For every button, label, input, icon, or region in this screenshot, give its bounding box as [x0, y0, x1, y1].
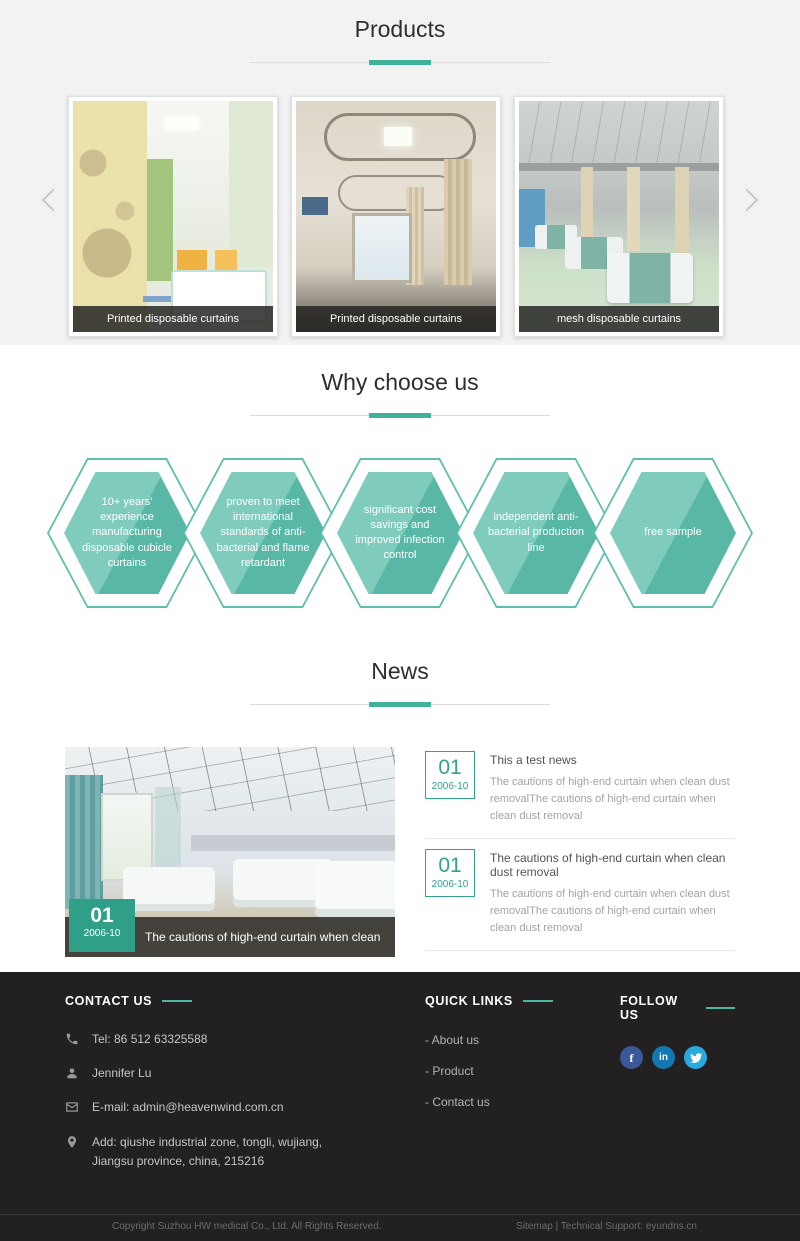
quicklinks-heading-label: QUICK LINKS: [425, 994, 513, 1008]
news-item-title[interactable]: The cautions of high-end curtain when cl…: [490, 851, 735, 879]
facebook-icon: f: [630, 1052, 634, 1064]
decor-bed: [123, 867, 215, 911]
linkedin-icon: in: [659, 1053, 668, 1063]
product-caption-3: mesh disposable curtains: [519, 306, 719, 332]
contact-row-address: Add: qiushe industrial zone, tongli, wuj…: [65, 1133, 365, 1171]
news-title-underline: [250, 704, 550, 705]
twitter-icon: [689, 1051, 702, 1064]
contact-list: Tel: 86 512 63325588 Jennifer Lu E-mail:…: [65, 1030, 425, 1171]
title-accent: [369, 60, 431, 65]
products-section: Products: [0, 0, 800, 345]
footer-contact-column: CONTACT US Tel: 86 512 63325588 Jennifer…: [65, 994, 425, 1186]
decor-light: [165, 117, 199, 130]
footer-bottom-bar: Copyright Suzhou HW medical Co., Ltd. Al…: [0, 1214, 800, 1241]
contact-email: E-mail: admin@heavenwind.com.cn: [92, 1098, 284, 1117]
decor-rail: [519, 163, 719, 171]
decor-light: [384, 127, 412, 146]
contact-person: Jennifer Lu: [92, 1064, 151, 1083]
decor-wall: [73, 101, 147, 332]
heading-dash: [523, 1000, 553, 1002]
quicklink-about-us[interactable]: - About us: [425, 1033, 620, 1047]
product-card-1[interactable]: Printed disposable curtains: [68, 96, 278, 337]
followus-heading: FOLLOW US: [620, 994, 735, 1022]
decor-curtain-track: [338, 175, 456, 211]
product-image-icu-ward: [519, 101, 719, 332]
product-media-1: Printed disposable curtains: [73, 101, 273, 332]
news-featured-day: 01: [69, 904, 135, 928]
hexagon-feature-5: free sample: [593, 458, 753, 608]
title-accent: [369, 702, 431, 707]
decor-chair: [215, 250, 237, 270]
decor-curtain: [65, 775, 103, 909]
hexagon-strip: 10+ years' experience manufacturing disp…: [0, 450, 800, 646]
decor-curtain: [627, 167, 640, 251]
copyright-text: Copyright Suzhou HW medical Co., Ltd. Al…: [112, 1221, 382, 1232]
contact-address: Add: qiushe industrial zone, tongli, wuj…: [92, 1133, 365, 1171]
decor-bed: [607, 253, 693, 303]
news-item-summary: The cautions of high-end curtain when cl…: [490, 774, 735, 825]
social-links: f in: [620, 1046, 735, 1069]
mail-icon: [65, 1100, 79, 1114]
news-item-2[interactable]: 01 2006-10 The cautions of high-end curt…: [425, 839, 735, 951]
news-featured-yearmonth: 2006-10: [69, 928, 135, 939]
product-caption-1: Printed disposable curtains: [73, 306, 273, 332]
decor-console: [191, 835, 395, 851]
news-yearmonth: 2006-10: [426, 781, 474, 792]
quicklinks-heading: QUICK LINKS: [425, 994, 620, 1008]
decor-ceiling: [519, 101, 719, 171]
decor-cabinet: [147, 159, 173, 281]
why-choose-us-section: Why choose us 10+ years' experience manu…: [0, 345, 800, 646]
news-featured-date-badge: 01 2006-10: [69, 899, 135, 952]
quicklink-contact-us[interactable]: - Contact us: [425, 1095, 620, 1109]
contact-row-tel: Tel: 86 512 63325588: [65, 1030, 365, 1049]
user-icon: [65, 1066, 79, 1080]
quicklink-product[interactable]: - Product: [425, 1064, 620, 1078]
hexagon-feature-4: independent anti-bacterial production li…: [456, 458, 616, 608]
heading-dash: [706, 1007, 735, 1009]
news-featured-card[interactable]: The cautions of high-end curtain when cl…: [65, 747, 395, 957]
news-date-badge: 01 2006-10: [425, 849, 475, 897]
product-card-2[interactable]: Printed disposable curtains: [291, 96, 501, 337]
footer-follow-column: FOLLOW US f in: [620, 994, 735, 1186]
decor-window: [352, 213, 412, 283]
contact-row-email: E-mail: admin@heavenwind.com.cn: [65, 1098, 365, 1117]
product-caption-2: Printed disposable curtains: [296, 306, 496, 332]
contact-heading-label: CONTACT US: [65, 994, 152, 1008]
title-accent: [369, 413, 431, 418]
decor-tv: [302, 197, 328, 215]
news-title: News: [0, 658, 800, 685]
sitemap-support-text: Sitemap | Technical Support: eyundns.cn: [516, 1221, 697, 1232]
followus-heading-label: FOLLOW US: [620, 994, 696, 1022]
why-title-underline: [250, 415, 550, 416]
news-item-1[interactable]: 01 2006-10 This a test news The cautions…: [425, 741, 735, 839]
product-card-3[interactable]: mesh disposable curtains: [514, 96, 724, 337]
contact-tel: Tel: 86 512 63325588: [92, 1030, 207, 1049]
chevron-left-icon: [42, 189, 65, 212]
carousel-next-button[interactable]: [734, 178, 760, 222]
footer: CONTACT US Tel: 86 512 63325588 Jennifer…: [0, 972, 800, 1241]
product-image-kids-ward: [73, 101, 273, 332]
twitter-button[interactable]: [684, 1046, 707, 1069]
decor-curtain: [675, 167, 689, 263]
contact-heading: CONTACT US: [65, 994, 425, 1008]
hexagon-feature-2: proven to meet international standards o…: [183, 458, 343, 608]
linkedin-button[interactable]: in: [652, 1046, 675, 1069]
why-title: Why choose us: [0, 369, 800, 396]
carousel-prev-button[interactable]: [40, 178, 66, 222]
news-text: The cautions of high-end curtain when cl…: [490, 849, 735, 937]
decor-wall: [229, 101, 273, 267]
news-content: The cautions of high-end curtain when cl…: [65, 747, 735, 957]
product-media-3: mesh disposable curtains: [519, 101, 719, 332]
product-image-curtain-tracks: [296, 101, 496, 332]
news-yearmonth: 2006-10: [426, 879, 474, 890]
news-day: 01: [426, 755, 474, 781]
decor-bed: [315, 861, 395, 917]
location-icon: [65, 1135, 79, 1149]
page: Products: [0, 0, 800, 1241]
quicklinks-list: - About us - Product - Contact us: [425, 1033, 620, 1109]
footer-quicklinks-column: QUICK LINKS - About us - Product - Conta…: [425, 994, 620, 1186]
footer-columns: CONTACT US Tel: 86 512 63325588 Jennifer…: [0, 994, 800, 1186]
product-cards: Printed disposable curtains Printed disp…: [68, 96, 724, 337]
products-title-underline: [250, 62, 550, 63]
news-text: This a test news The cautions of high-en…: [490, 751, 735, 825]
decor-curtain: [444, 159, 472, 285]
heading-dash: [162, 1000, 192, 1002]
phone-icon: [65, 1032, 79, 1046]
product-media-2: Printed disposable curtains: [296, 101, 496, 332]
products-title: Products: [0, 16, 800, 43]
news-section: News The cautions of high-end curtain wh…: [0, 646, 800, 972]
news-item-summary: The cautions of high-end curtain when cl…: [490, 886, 735, 937]
news-day: 01: [426, 853, 474, 879]
facebook-button[interactable]: f: [620, 1046, 643, 1069]
news-date-badge: 01 2006-10: [425, 751, 475, 799]
chevron-right-icon: [736, 189, 759, 212]
news-list: 01 2006-10 This a test news The cautions…: [425, 741, 735, 957]
news-item-title[interactable]: This a test news: [490, 753, 735, 767]
decor-curtain: [581, 167, 593, 239]
contact-row-person: Jennifer Lu: [65, 1064, 365, 1083]
